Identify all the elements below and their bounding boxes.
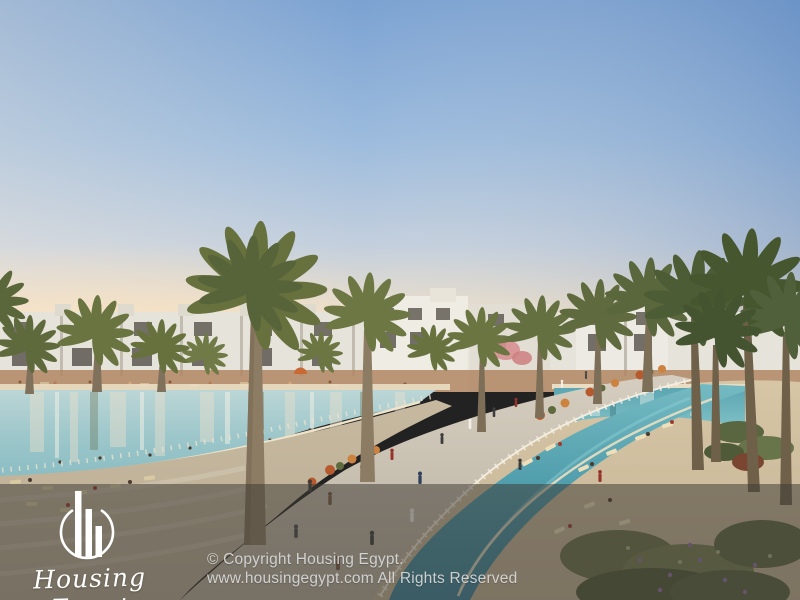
building-bars-logo-icon: [51, 486, 123, 564]
copyright-text: © Copyright Housing Egypt. www.housingeg…: [207, 550, 517, 588]
copyright-line2: www.housingegypt.com All Rights Reserved: [207, 569, 517, 588]
copyright-line1: © Copyright Housing Egypt.: [207, 550, 517, 569]
housing-egypt-logo: Housing Egypt: [0, 486, 180, 600]
logo-brand-text: Housing Egypt: [0, 562, 181, 600]
screenshot-root: Housing Egypt © Copyright Housing Egypt.…: [0, 0, 800, 600]
far-shore-edge: [0, 384, 450, 390]
